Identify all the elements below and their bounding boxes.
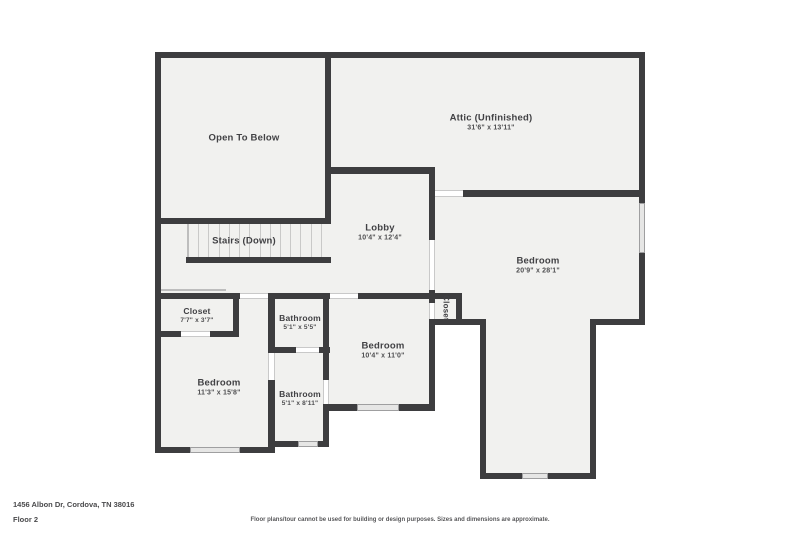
stairs-left-edge-line	[187, 224, 189, 257]
door-opening-bedroom-middle-entry	[330, 293, 358, 299]
wall-top-outer	[155, 52, 645, 58]
wall-bedroom-mid-right	[429, 319, 435, 410]
room-label-open-to-below: Open To Below	[208, 133, 279, 144]
stair-tread	[208, 224, 209, 257]
door-opening-closet-left	[181, 331, 210, 337]
room-label-closet-left: Closet 7'7" x 3'7"	[180, 306, 213, 324]
stair-tread	[290, 224, 291, 257]
window-bedroom-right-south	[522, 473, 548, 479]
room-label-stairs: Stairs (Down)	[212, 236, 276, 247]
door-opening-bedroom-left-bathroom	[268, 353, 275, 380]
window-bedroom-right-east	[639, 203, 645, 253]
wall-bedroom-step-right	[590, 319, 645, 325]
door-opening-bedroom-right-entry	[429, 240, 435, 290]
room-label-bathroom-upper: Bathroom 5'1" x 5'5"	[279, 313, 321, 331]
wall-stairs-bottom	[186, 257, 331, 263]
wall-leg-left	[480, 319, 486, 479]
door-opening-bathroom-bedroom-middle	[323, 380, 329, 404]
floor-attic-bedroom	[433, 55, 643, 322]
wall-right-outer	[639, 52, 645, 319]
wall-attic-bottom	[463, 190, 645, 197]
window-bedroom-left	[190, 447, 240, 453]
room-label-bedroom-left: Bedroom 11'3" x 15'8"	[197, 378, 240, 397]
window-bedroom-middle	[357, 404, 399, 411]
wall-lobby-right	[429, 167, 435, 240]
room-label-bathroom-lower: Bathroom 5'1" x 8'11"	[279, 389, 321, 407]
room-label-lobby: Lobby 10'4" x 12'4"	[358, 223, 402, 242]
wall-lobby-top	[331, 167, 435, 174]
floor-plan: Open To Below Stairs (Down) Attic (Unfin…	[0, 0, 800, 533]
wall-bath-right-upper	[323, 299, 329, 380]
wall-open-below-right	[325, 52, 331, 224]
wall-left-outer	[155, 52, 161, 453]
room-label-bedroom-middle: Bedroom 10'4" x 11'0"	[361, 341, 404, 360]
disclaimer-text: Floor plans/tour cannot be used for buil…	[0, 517, 800, 523]
wall-mid-a	[155, 293, 240, 299]
door-opening-bathroom-upper	[296, 347, 319, 353]
hallway-railing-line	[161, 289, 226, 291]
door-opening-attic	[435, 190, 463, 197]
property-address: 1456 Albon Dr, Cordova, TN 38016	[13, 500, 134, 509]
floor-bedroom-leg	[483, 322, 593, 475]
wall-bath-left-upper	[268, 299, 275, 353]
wall-leg-right	[590, 319, 596, 479]
room-label-attic: Attic (Unfinished) 31'6" x 13'11"	[450, 113, 533, 132]
wall-mid-b	[268, 293, 330, 299]
stair-tread	[300, 224, 301, 257]
window-bathroom-lower	[298, 441, 318, 447]
stair-tread	[321, 224, 322, 257]
stair-tread	[280, 224, 281, 257]
stair-tread	[311, 224, 312, 257]
room-label-bedroom-right: Bedroom 20'9" x 28'1"	[516, 256, 560, 275]
room-label-closet-middle: Closet	[442, 295, 451, 321]
door-opening-bedroom-left-entry	[240, 293, 268, 299]
stair-tread	[198, 224, 199, 257]
door-opening-closet-middle	[429, 303, 435, 319]
